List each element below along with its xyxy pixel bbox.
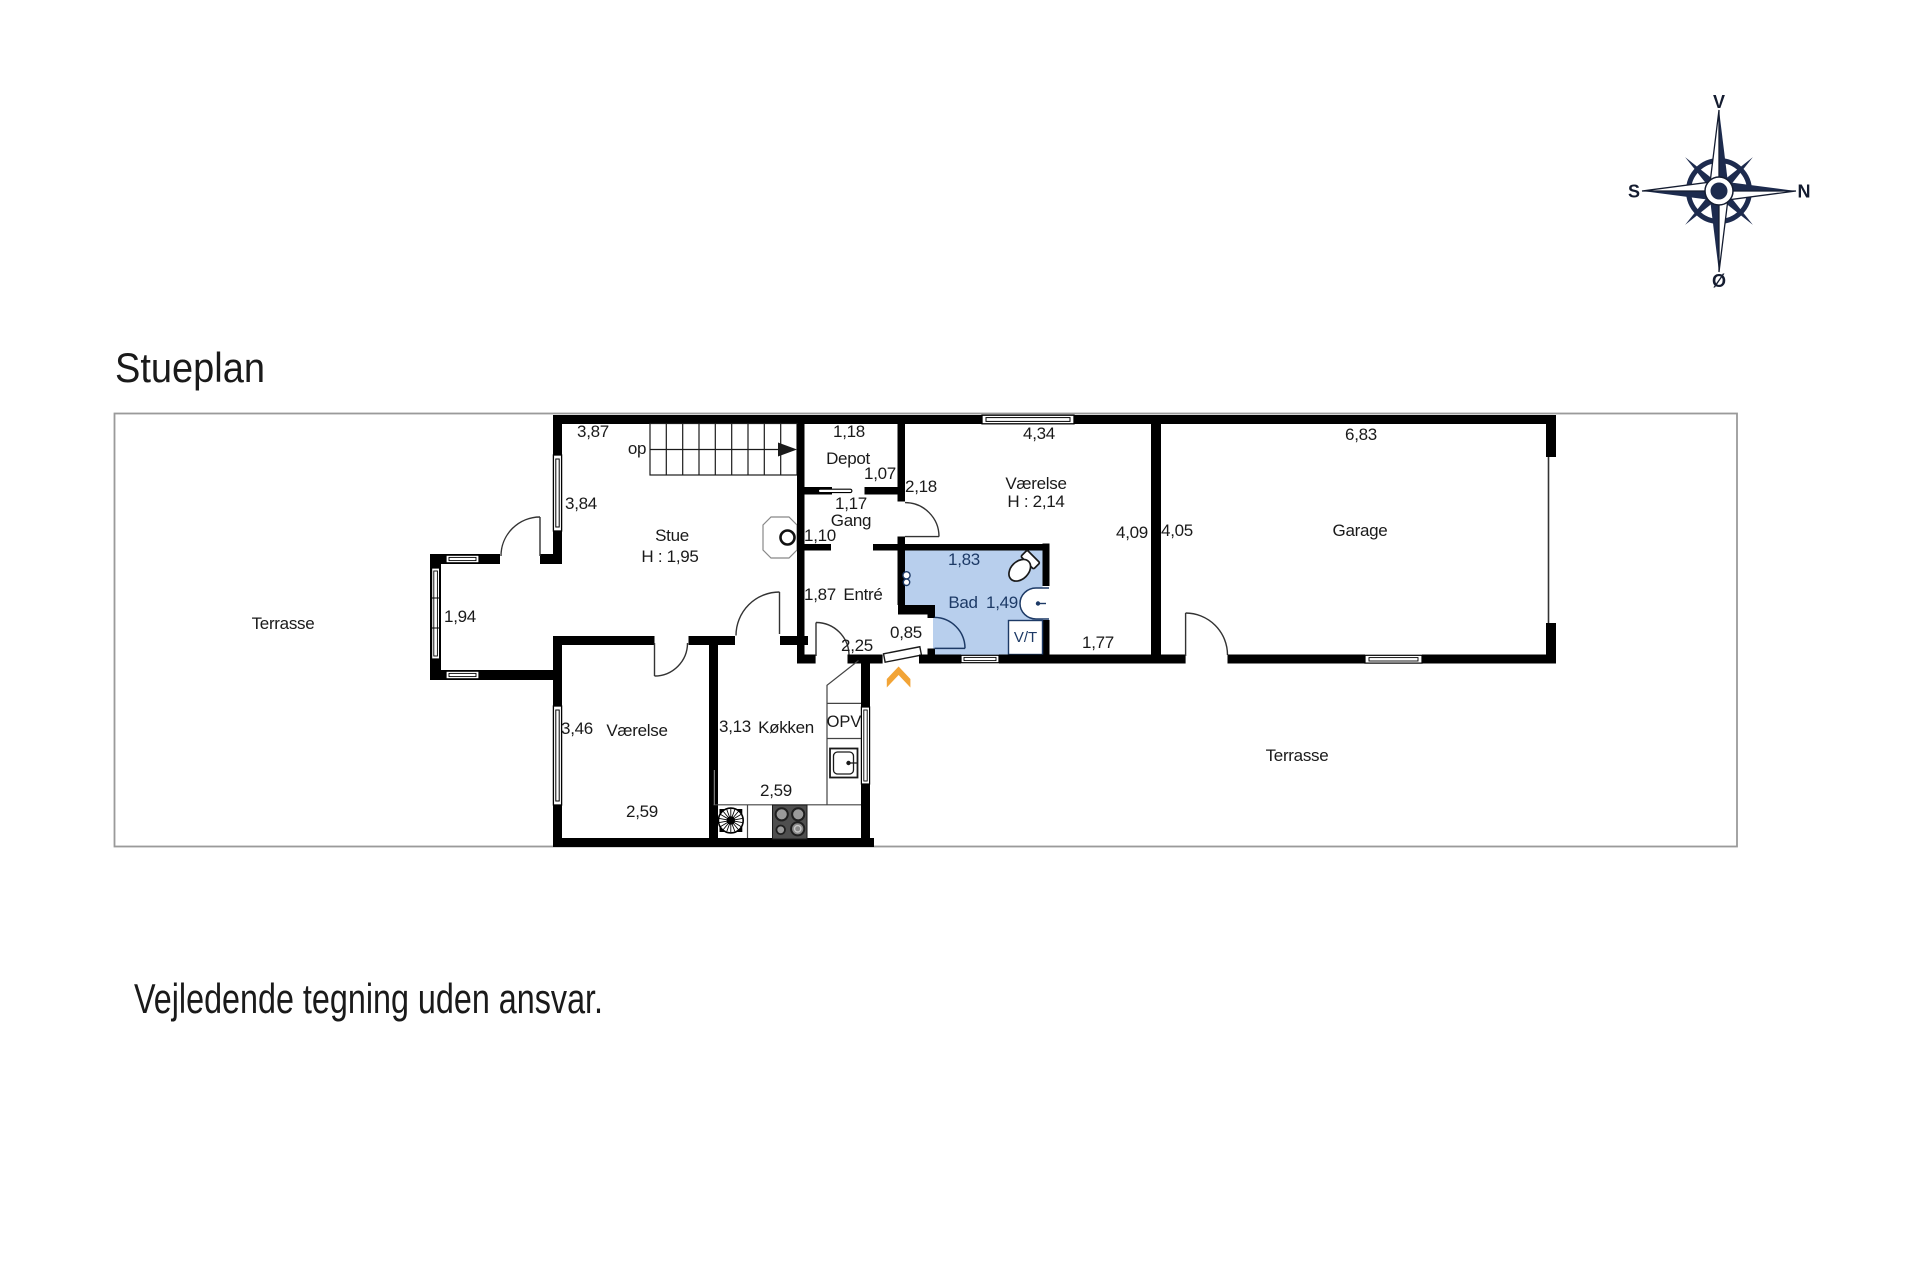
- svg-text:3,87: 3,87: [577, 422, 609, 441]
- svg-text:2,59: 2,59: [626, 802, 658, 821]
- svg-text:2,59: 2,59: [760, 781, 792, 800]
- svg-text:2,25: 2,25: [841, 636, 873, 655]
- svg-text:N: N: [1798, 182, 1811, 202]
- svg-text:H : 1,95: H : 1,95: [641, 547, 698, 566]
- svg-text:Terrasse: Terrasse: [1266, 746, 1329, 765]
- svg-text:1,83: 1,83: [948, 550, 980, 569]
- svg-text:Værelse: Værelse: [1005, 474, 1066, 493]
- svg-text:Ø: Ø: [1712, 271, 1726, 291]
- svg-text:1,07: 1,07: [864, 464, 896, 483]
- svg-text:Stue: Stue: [655, 526, 689, 545]
- svg-text:3,46: 3,46: [561, 719, 593, 738]
- svg-text:OPV: OPV: [827, 713, 862, 731]
- svg-text:1,94: 1,94: [444, 607, 476, 626]
- svg-text:Garage: Garage: [1333, 521, 1388, 540]
- svg-text:op: op: [628, 439, 646, 458]
- svg-text:0,85: 0,85: [890, 623, 922, 642]
- svg-text:1,18: 1,18: [833, 422, 865, 441]
- svg-text:H : 2,14: H : 2,14: [1007, 492, 1064, 511]
- svg-text:3,13: 3,13: [719, 717, 751, 736]
- svg-text:Terrasse: Terrasse: [252, 614, 315, 633]
- svg-text:4,34: 4,34: [1023, 424, 1055, 443]
- svg-text:Entré: Entré: [843, 585, 882, 604]
- svg-text:Stueplan: Stueplan: [115, 344, 265, 391]
- svg-text:Værelse: Værelse: [606, 721, 667, 740]
- svg-text:V: V: [1713, 92, 1725, 112]
- svg-text:4,05: 4,05: [1161, 521, 1193, 540]
- svg-text:1,49: 1,49: [986, 593, 1018, 612]
- svg-text:6,83: 6,83: [1345, 425, 1377, 444]
- svg-text:Gang: Gang: [831, 511, 871, 530]
- svg-text:1,87: 1,87: [804, 585, 836, 604]
- svg-text:3,84: 3,84: [565, 494, 597, 513]
- svg-text:1,10: 1,10: [804, 526, 836, 545]
- svg-text:Bad: Bad: [948, 593, 977, 612]
- svg-text:S: S: [1628, 182, 1640, 202]
- svg-text:Vejledende tegning uden ansvar: Vejledende tegning uden ansvar.: [134, 975, 603, 1022]
- svg-text:2,18: 2,18: [905, 477, 937, 496]
- svg-text:1,77: 1,77: [1082, 633, 1114, 652]
- svg-text:Køkken: Køkken: [758, 718, 814, 737]
- svg-text:4,09: 4,09: [1116, 523, 1148, 542]
- svg-text:V/T: V/T: [1014, 629, 1037, 646]
